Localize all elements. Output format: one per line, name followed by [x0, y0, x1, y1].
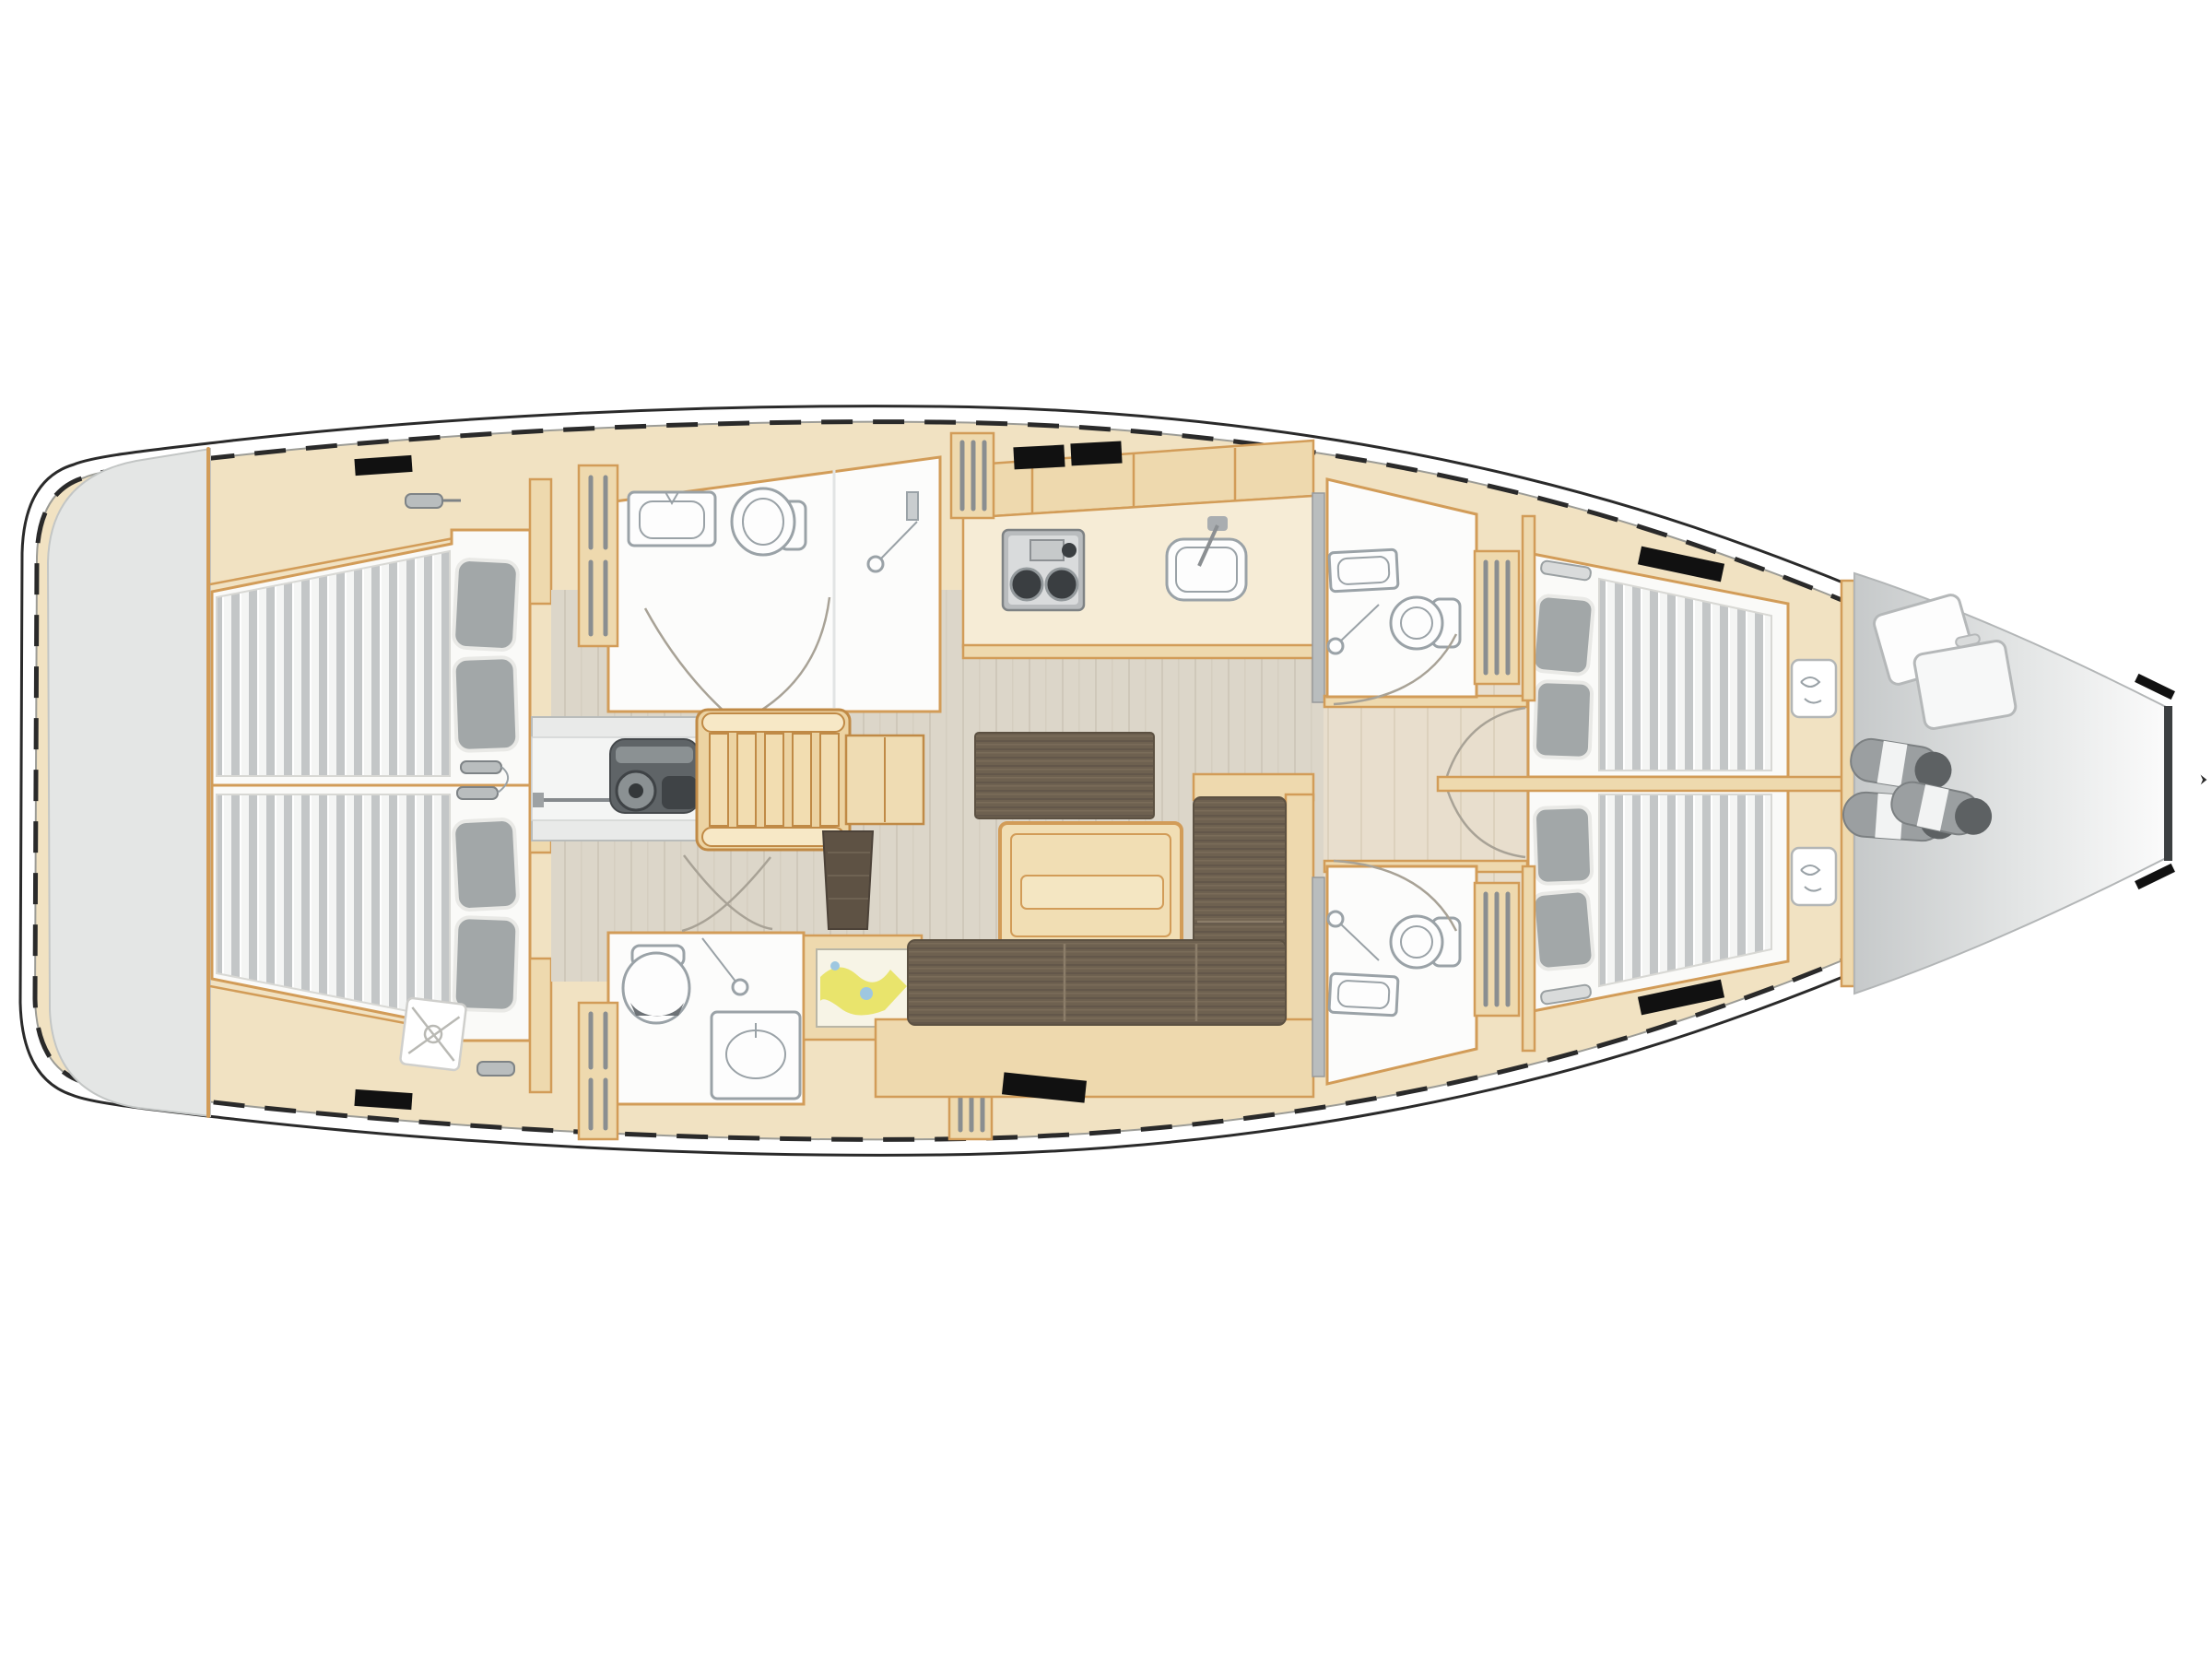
- partition-forward-top: [1312, 493, 1324, 702]
- chart-water: [830, 961, 840, 971]
- table-leaf: [1021, 876, 1163, 909]
- berth-divider-latch-1: [461, 761, 501, 773]
- galley: [963, 441, 1313, 658]
- galley-fiddle-trim: [963, 645, 1313, 658]
- floor-plan-svg: [0, 0, 2212, 1659]
- wall-segment: [530, 479, 551, 604]
- forward-cabin-port-pillow-1: [1533, 595, 1594, 676]
- sink-icon: [712, 1012, 800, 1099]
- wall-segment: [530, 959, 551, 1092]
- toilet-icon: [1391, 916, 1460, 968]
- nav-seat: [823, 831, 873, 929]
- vent-fan-icon: [400, 997, 466, 1070]
- toilet-icon: [623, 946, 689, 1023]
- forward-head-port: [1327, 479, 1477, 704]
- cabin-wall-segment: [1523, 866, 1535, 1051]
- yacht-floor-plan-canvas: [0, 0, 2212, 1659]
- bow-tip-deck: [2168, 702, 2203, 863]
- stair-step: [765, 734, 783, 826]
- nightstand: [1792, 660, 1836, 717]
- louvered-locker-aft-bottom: [579, 1003, 618, 1139]
- transom-platform: [48, 449, 210, 1116]
- louvered-locker-forward-bottom: [1475, 883, 1519, 1016]
- partition-forward-bottom: [1312, 877, 1324, 1077]
- sink-icon: [1329, 549, 1398, 592]
- aft-cabin-port-pillow-2: [453, 657, 517, 751]
- forward-head-starboard: [1327, 861, 1477, 1084]
- collision-bulkhead: [1841, 581, 1854, 986]
- stair-step: [710, 734, 728, 826]
- chart-water: [860, 987, 873, 1000]
- aft-cabin-port-pillow-1: [453, 559, 519, 650]
- deck-latch-icon: [477, 1062, 514, 1076]
- stair-step: [737, 734, 756, 826]
- salon-sideboard: [975, 733, 1154, 818]
- dining-table: [1000, 823, 1182, 947]
- nightstand: [1792, 848, 1836, 905]
- louvered-locker-galley-top: [951, 433, 994, 518]
- louvered-locker-aft-top: [579, 465, 618, 646]
- toilet-icon: [1391, 597, 1460, 649]
- cabin-wall-segment: [1523, 516, 1535, 700]
- forestay-fitting: [2164, 706, 2172, 861]
- stove-icon: [1003, 530, 1084, 610]
- forward-cabin-starboard-pillow-1: [1535, 806, 1593, 884]
- sofa-seat-horizontal: [908, 940, 1286, 1025]
- louvered-locker-forward-top: [1475, 551, 1519, 684]
- aft-cabin-starboard-pillow-1: [453, 818, 519, 910]
- berth-divider-latch-2: [457, 787, 498, 799]
- stair-step: [820, 734, 839, 826]
- deck-hatch: [1013, 445, 1065, 470]
- stair-step: [793, 734, 811, 826]
- sofa-base-wood: [876, 1019, 1313, 1097]
- sofa-side-wood: [1286, 794, 1313, 1025]
- deck-latch-icon: [406, 494, 442, 508]
- forward-cabin-divider: [1438, 777, 1857, 791]
- engine-compartment: [532, 717, 700, 841]
- sink-icon: [629, 492, 715, 546]
- sail-locker: [1841, 573, 2203, 994]
- forward-cabin-port-pillow-2: [1535, 681, 1593, 759]
- aft-cabin-starboard-pillow-2: [453, 917, 517, 1011]
- forward-cabin-starboard-pillow-2: [1533, 890, 1594, 971]
- shower-mixer-icon: [907, 492, 918, 520]
- stair-top-rail: [702, 713, 844, 732]
- sink-icon: [1329, 973, 1398, 1016]
- deck-hatch: [1070, 441, 1122, 466]
